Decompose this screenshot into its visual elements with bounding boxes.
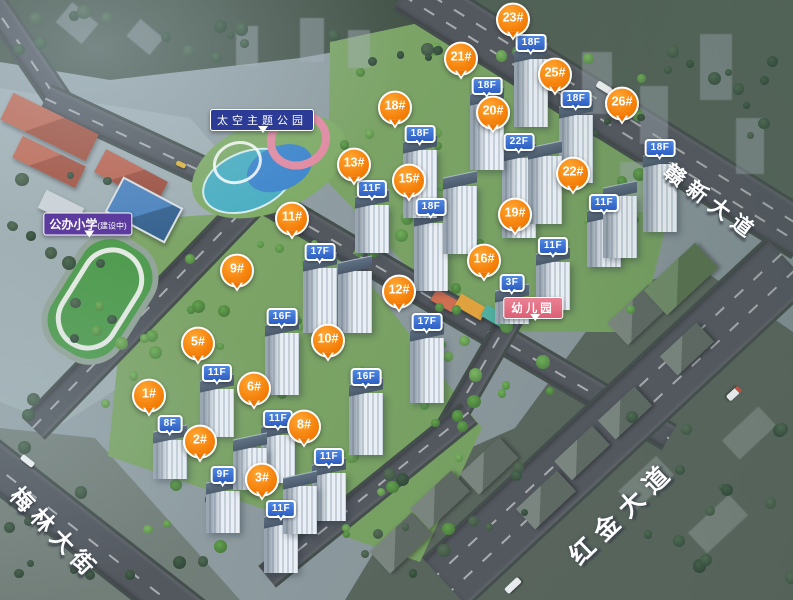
tree [583,53,594,64]
tower-body [355,205,389,253]
tree [75,486,87,498]
tree [185,254,195,264]
tower [528,144,562,224]
ghost-building [348,30,370,68]
tree [758,118,769,129]
tree [395,229,408,242]
tree [637,114,644,121]
floor-tag: 22F [504,133,535,151]
tree [70,298,80,308]
tree [15,173,29,187]
tree [467,395,480,408]
building-pin[interactable]: 2# [183,425,217,459]
floor-tag: 9F [211,466,236,484]
building-pin[interactable]: 1# [132,379,166,413]
park-label-tail [258,126,268,138]
tree [637,74,646,83]
tree [361,550,369,558]
kindergarten-label: 幼儿园 [503,297,563,319]
tree [681,424,692,435]
building-pin[interactable]: 13# [337,148,371,182]
tree [459,336,469,346]
floor-tag: 18F [472,77,503,95]
tree [700,554,712,566]
tree [29,12,43,26]
tree [163,520,171,528]
building-pin[interactable]: 11# [275,202,309,236]
tree [235,22,249,36]
tree [26,231,36,241]
tree [433,46,442,55]
school-label-note: (建设中) [97,222,126,231]
tree [214,540,227,553]
floor-tag: 18F [516,34,547,52]
park-label: 太空主题公园 [210,109,314,131]
tree [45,247,57,259]
building-pin[interactable]: 21# [444,42,478,76]
tree [455,454,463,462]
floor-tag: 18F [561,90,592,108]
tree [342,524,350,532]
school-label-tail [85,231,95,243]
tree [396,473,409,486]
building-pin[interactable]: 20# [476,96,510,130]
tree [443,351,454,362]
school-label: 公办小学(建设中) [43,213,132,236]
tree [161,32,171,42]
tree [103,177,112,186]
tree [218,305,230,317]
tree [183,45,194,56]
building-pin[interactable]: 15# [392,164,426,198]
tree [216,343,223,350]
tree [644,530,652,538]
tower-body [312,473,346,521]
tree [451,283,461,293]
floor-tag: 11F [589,194,619,212]
building-pin[interactable]: 19# [498,198,532,232]
tower-body [443,186,477,254]
floor-tag: 11F [314,448,344,466]
floor-tag: 11F [266,500,296,518]
ghost-building [700,34,732,100]
tree [140,334,149,343]
tree [101,399,110,408]
floor-tag: 11F [202,364,232,382]
tree [667,45,680,58]
tree [468,516,479,527]
tower-body [206,491,240,533]
tree [442,523,454,535]
tree [673,535,685,547]
tower-body [410,338,444,403]
tree [187,306,195,314]
tower [443,174,477,254]
building-pin[interactable]: 3# [245,463,279,497]
floor-tag: 18F [416,198,447,216]
building-pin[interactable]: 23# [496,3,530,37]
tree [365,129,374,138]
floor-tag: 18F [645,139,676,157]
tree [91,326,101,336]
tree [626,305,635,314]
building-pin[interactable]: 25# [538,58,572,92]
building-pin[interactable]: 22# [556,157,590,191]
tree [502,381,511,390]
building-pin[interactable]: 16# [467,244,501,278]
tree [402,523,410,531]
floor-tag: 11F [357,180,387,198]
floor-tag: 18F [405,125,436,143]
building-pin[interactable]: 9# [220,254,254,288]
tree [452,410,463,421]
tree [14,569,24,579]
building-pin[interactable]: 18# [378,91,412,125]
tree [785,571,793,583]
tree [397,51,405,59]
kindergarten-label-tail [531,314,541,326]
tree [513,462,524,473]
tree [198,556,208,566]
tree [452,305,461,314]
building-pin[interactable]: 10# [311,324,345,358]
tree [107,315,116,324]
tree [77,5,91,19]
tree [125,570,135,580]
tree [328,30,339,41]
masterplan-aerial-map: 8F1#9F2#11F3#11F5#11F6#11F8#16F9#16F10#1… [0,0,793,600]
floor-tag: 16F [267,308,298,326]
tree [469,368,482,381]
tree [170,479,182,491]
tree [743,102,750,109]
tree [356,68,365,77]
tree [776,423,788,435]
tree [498,389,506,397]
ghost-building [300,18,324,62]
tree [18,441,31,454]
tree [437,544,451,558]
tree [767,56,778,67]
building-pin[interactable]: 12# [382,275,416,309]
floor-tag: 11F [538,237,568,255]
building-pin[interactable]: 6# [237,372,271,406]
tower-body [153,440,187,479]
tower [338,259,372,333]
building-pin[interactable]: 5# [181,327,215,361]
tree [431,419,440,428]
tower-body [338,271,372,333]
building-pin[interactable]: 26# [605,87,639,121]
tree [96,259,105,268]
tree [765,497,776,508]
tower-body [349,393,383,455]
tree [143,525,153,535]
tree [383,468,396,481]
tree [626,411,638,423]
tree [22,409,35,422]
tree [8,222,17,231]
tree [536,355,549,368]
floor-tag: 16F [351,368,382,386]
tree [686,60,694,68]
building-pin[interactable]: 8# [287,410,321,444]
floor-tag: 17F [305,243,336,261]
tree [211,52,222,63]
floor-tag: 8F [158,415,183,433]
tree [496,50,508,62]
school-label-text: 公办小学 [49,218,97,232]
floor-tag: 17F [412,313,443,331]
tree [240,39,249,48]
floor-tag: 3F [500,274,525,292]
